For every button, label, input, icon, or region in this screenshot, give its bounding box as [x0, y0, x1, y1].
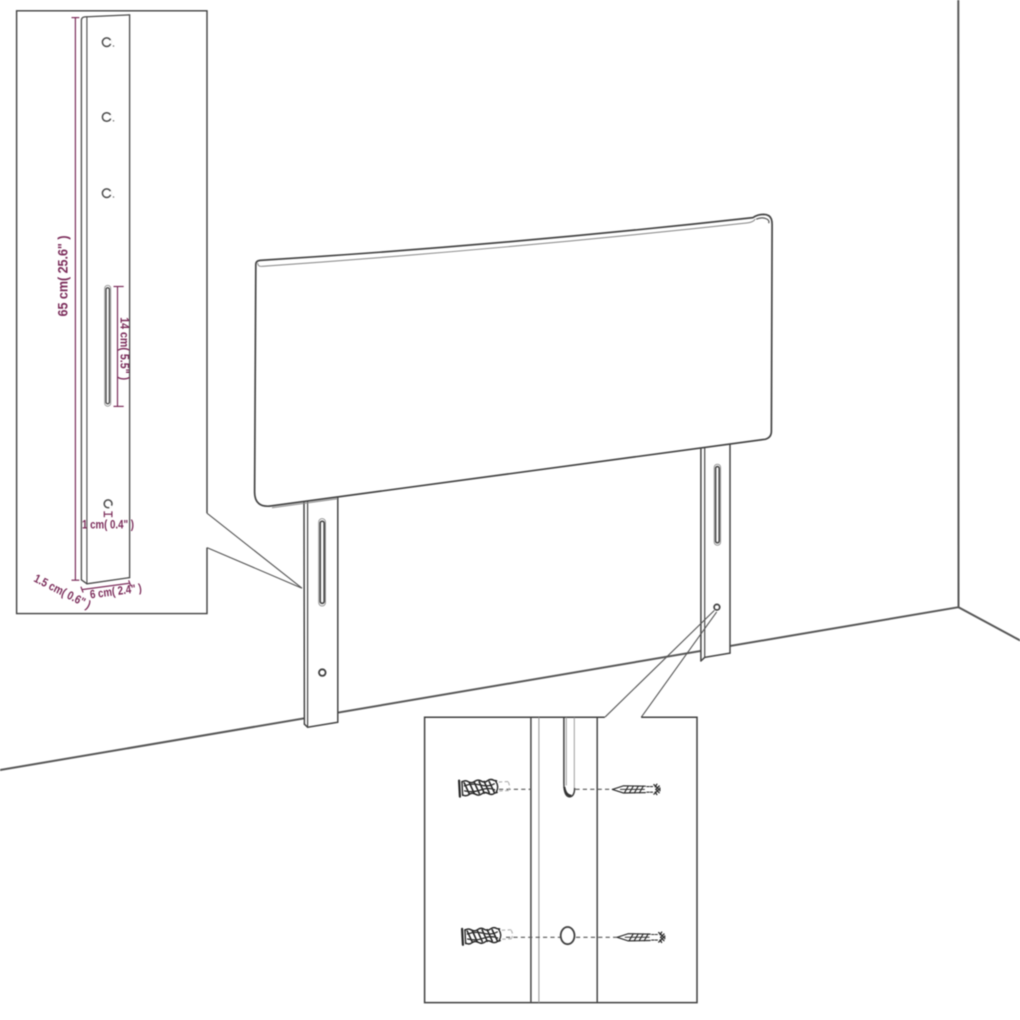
- svg-text:14 cm( 5.5" ): 14 cm( 5.5" ): [118, 317, 132, 380]
- svg-text:65 cm( 25.6" ): 65 cm( 25.6" ): [55, 236, 70, 317]
- svg-text:1 cm( 0.4" ): 1 cm( 0.4" ): [82, 518, 134, 532]
